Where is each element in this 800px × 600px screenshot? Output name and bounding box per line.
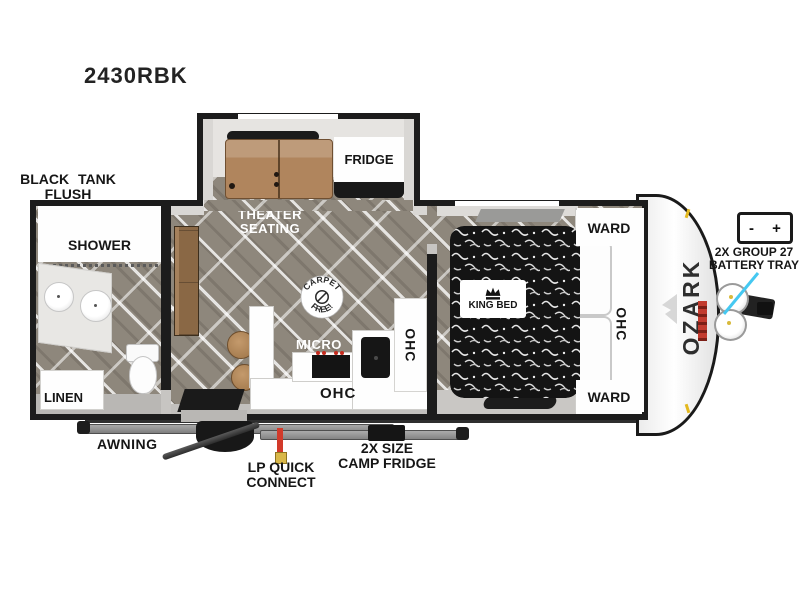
living-top-wall-left — [171, 206, 204, 215]
awning-rail-endcap — [77, 421, 90, 434]
sink-1-drain — [57, 295, 60, 298]
camp-fridge-line1: 2X SIZE — [330, 441, 444, 456]
kitchen-ohc-side-box: OHC — [394, 298, 427, 392]
black-tank-flush-line2: FLUSH — [8, 187, 128, 202]
slideout-opening — [204, 200, 413, 211]
theater-seat-button-2 — [274, 172, 279, 177]
entry-door-mat — [177, 389, 244, 412]
fridge-front — [334, 182, 404, 198]
theater-seat-button-1 — [274, 182, 279, 187]
black-tank-flush-line1: BLACK TANK — [8, 172, 128, 187]
stove — [312, 355, 350, 378]
bedroom-top-window — [475, 209, 565, 222]
battery-arrow-icon — [716, 270, 766, 320]
camp-fridge-label: 2X SIZE CAMP FRIDGE — [330, 441, 444, 470]
kitchen-ohc-bottom-label: OHC — [320, 386, 356, 402]
toilet-bowl — [129, 356, 157, 394]
lp-label-line1: LP QUICK — [238, 460, 324, 475]
floorplan-canvas: 2430RBK OZARK - + 2X GROUP 27 BATTERY TR… — [0, 0, 800, 600]
camp-fridge-line2: CAMP FRIDGE — [330, 456, 444, 471]
king-bed-label: KING BED — [469, 301, 518, 312]
lower-rail-endcap — [456, 427, 469, 440]
bedroom-wall-end — [427, 244, 437, 254]
slideout-wall-left — [203, 119, 213, 200]
lp-label-line2: CONNECT — [238, 475, 324, 490]
slideout-top-window — [238, 114, 338, 119]
theater-label-line2: SEATING — [213, 222, 327, 236]
black-tank-flush-label: BLACK TANK FLUSH — [8, 172, 128, 201]
fridge-label: FRIDGE — [344, 153, 393, 167]
lp-quick-connect-label: LP QUICK CONNECT — [238, 460, 324, 489]
kitchen-counter-left-arm — [249, 306, 274, 388]
sink-2-drain — [94, 304, 97, 307]
ward-bottom-box: WARD — [576, 380, 642, 414]
king-bed-label-box: KING BED — [460, 280, 526, 318]
ward-top-label: WARD — [588, 221, 631, 236]
camp-fridge-box — [368, 425, 405, 441]
linen-label: LINEN — [44, 391, 83, 405]
battery-plus-symbol: + — [772, 220, 781, 237]
bedroom-ohc-box: OHC — [606, 280, 636, 368]
living-top-wall-right — [413, 206, 427, 215]
battery-tray-red-bracket — [698, 301, 707, 341]
theater-seat — [225, 139, 333, 199]
slideout: FRIDGE — [197, 113, 420, 206]
bathroom-wall-end — [161, 390, 171, 414]
fridge-box: FRIDGE — [334, 137, 404, 182]
carpet-free-badge: CARPET FREE! — [299, 274, 345, 320]
bathroom-wall — [161, 206, 171, 390]
theater-seating-label: THEATER SEATING — [213, 208, 327, 235]
kitchen-sink-drain — [374, 356, 378, 360]
battery-icon: - + — [737, 212, 793, 244]
ward-bottom-label: WARD — [588, 390, 631, 405]
shower — [38, 206, 161, 262]
entertainment-cabinet — [174, 226, 199, 336]
theater-seat-button-3 — [229, 183, 235, 189]
bedroom-top-border-window — [455, 201, 559, 206]
awning-label: AWNING — [97, 437, 158, 452]
battery-2-terminal — [727, 321, 731, 325]
bedroom-wall — [427, 252, 437, 414]
micro-label: MICRO — [296, 338, 342, 352]
lower-rail — [260, 430, 462, 440]
shower-label: SHOWER — [68, 238, 131, 253]
bedroom-ohc-label: OHC — [614, 307, 629, 341]
crown-icon — [482, 286, 504, 300]
battery-tray-label: 2X GROUP 27 BATTERY TRAY — [706, 246, 800, 271]
mountain-logo-icon — [662, 290, 677, 324]
ward-top-box: WARD — [576, 210, 642, 246]
lp-connector-stem — [277, 428, 283, 453]
battery-tray-label-line1: 2X GROUP 27 — [706, 246, 800, 259]
page-title: 2430RBK — [84, 64, 188, 87]
kitchen-ohc-side-label: OHC — [403, 328, 418, 362]
battery-minus-symbol: - — [749, 220, 754, 237]
slideout-wall-right — [404, 119, 414, 200]
